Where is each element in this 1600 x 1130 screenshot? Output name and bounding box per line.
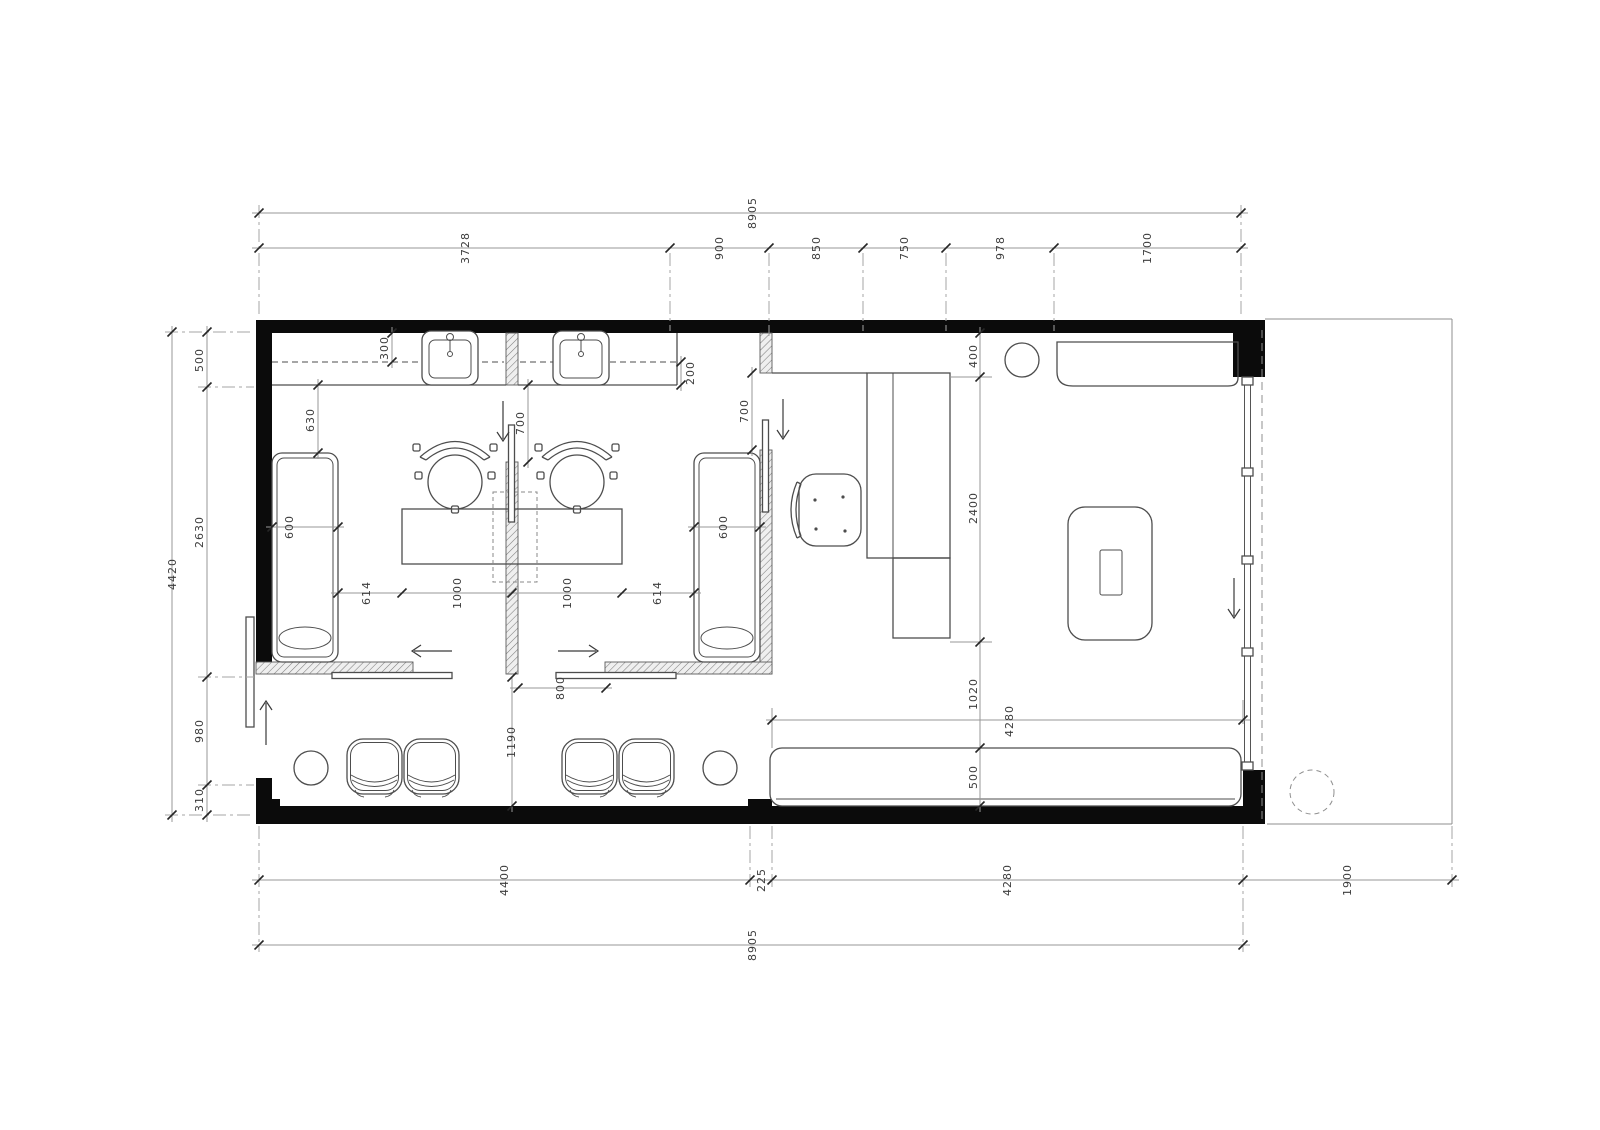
dim-label-bottom-seg-4: 1900 [1341, 864, 1354, 896]
dim-label-door-bottom: 800 [554, 676, 567, 700]
treatment-couch-left [272, 453, 338, 662]
dim-label-mid-seg-4: 614 [651, 581, 664, 605]
planter-dashed-circle [1290, 770, 1334, 814]
office-chair [791, 474, 861, 546]
dim-label-mid-seg-2: 1000 [451, 577, 464, 609]
sliding-door-center-arrow-icon [497, 401, 509, 441]
dim-label-left-overall: 4420 [166, 558, 179, 590]
dim-label-right-seg-3: 1020 [967, 678, 980, 710]
entry-sliding-door [246, 617, 254, 727]
treatment-couch-right [694, 453, 760, 662]
dim-label-right-seg-2: 2400 [967, 492, 980, 524]
dim-label-bottom-seg-1: 4400 [498, 864, 511, 896]
dim-label-hall-width: 1190 [505, 726, 518, 758]
dim-label-door-left: 700 [514, 411, 527, 435]
wall-bottom [256, 806, 1265, 824]
dim-label-bottom-seg-2: 225 [755, 868, 768, 892]
sliding-door-right [763, 420, 769, 512]
wall-top [256, 320, 1265, 333]
dim-label-mid-seg-1: 614 [360, 581, 373, 605]
sliding-door-room1-arrow-icon [412, 645, 452, 657]
glazed-facade [1242, 330, 1262, 820]
dim-label-top-seg-6: 1700 [1141, 232, 1154, 264]
dim-label-mid-seg-3: 1000 [561, 577, 574, 609]
dim-label-couch-left-width: 600 [283, 515, 296, 539]
dim-label-left-seg-2: 2630 [193, 516, 206, 548]
sliding-door-room2 [556, 673, 676, 679]
furniture [272, 331, 1241, 806]
wall-left-upper [256, 320, 272, 662]
dim-label-top-seg-5: 978 [994, 236, 1007, 260]
dim-label-bottom-overall: 8905 [746, 929, 759, 961]
dim-label-top-seg-2: 900 [713, 236, 726, 260]
dim-label-chair-zone: 630 [304, 408, 317, 432]
dim-label-left-seg-1: 500 [193, 348, 206, 372]
floor-plan-drawing: 8905372890085075097817004420500263098031… [0, 0, 1600, 1130]
dim-label-bottom-seg-3: 4280 [1001, 864, 1014, 896]
sliding-door-room2-arrow-icon [558, 645, 598, 657]
side-table [703, 751, 737, 785]
dim-label-top-overall: 8905 [746, 197, 759, 229]
sliding-door-right-arrow-icon [777, 399, 789, 439]
dim-label-bench-length: 4280 [1003, 705, 1016, 737]
dim-label-left-seg-3: 980 [193, 719, 206, 743]
side-table [294, 751, 328, 785]
stool [1005, 343, 1039, 377]
partition-center-upper [506, 333, 518, 385]
dim-label-couch-right-width: 600 [717, 515, 730, 539]
glass-door-arrow-icon [1228, 578, 1240, 618]
massage-table [1068, 507, 1152, 640]
doors [246, 399, 1240, 745]
dim-label-top-seg-3: 850 [810, 236, 823, 260]
dim-label-right-seg-1: 400 [967, 344, 980, 368]
counter-with-sinks [272, 331, 677, 385]
terrace-outline [1265, 319, 1452, 824]
centerlines [165, 205, 1452, 952]
entry-door-arrow-icon [260, 701, 272, 745]
dim-label-counter-edge: 200 [684, 361, 697, 385]
dim-label-top-seg-1: 3728 [459, 232, 472, 264]
dim-label-top-seg-4: 750 [898, 236, 911, 260]
floor-plan-page: 8905372890085075097817004420500263098031… [0, 0, 1600, 1130]
partition-right-upper [760, 333, 772, 373]
dim-label-counter-depth: 300 [378, 336, 391, 360]
sliding-door-room1 [332, 673, 452, 679]
bench-seat [770, 748, 1241, 806]
wall-pier [748, 799, 772, 807]
wall-step [268, 799, 280, 807]
dim-label-left-seg-4: 310 [193, 788, 206, 812]
dim-label-door-right: 700 [738, 399, 751, 423]
dimension-ticks [168, 209, 1457, 950]
sliding-door-center [509, 425, 515, 522]
dim-label-bench-depth: 500 [967, 765, 980, 789]
storage-counter [1057, 342, 1238, 386]
